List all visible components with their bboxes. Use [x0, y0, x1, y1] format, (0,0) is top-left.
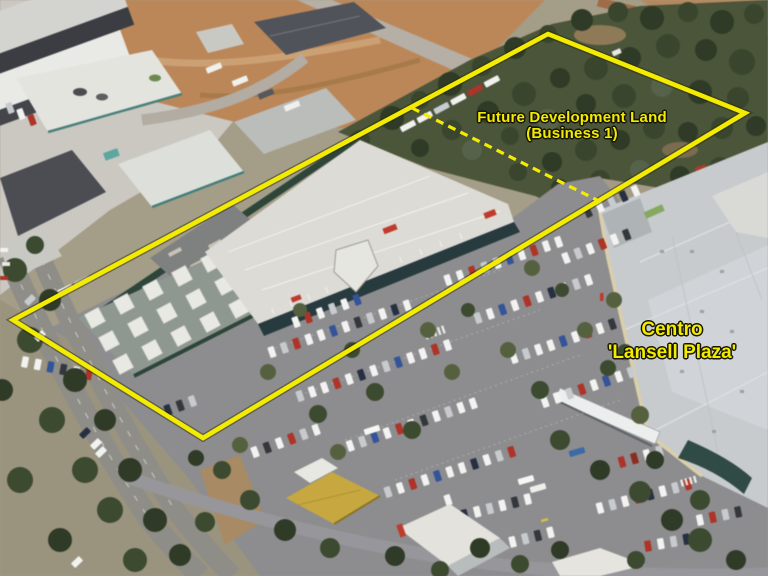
machinery [149, 75, 161, 82]
photo-layer [0, 0, 768, 576]
mall-sign [600, 293, 604, 301]
excavator [96, 94, 108, 101]
excavator [73, 88, 87, 96]
aerial-photo [0, 0, 768, 576]
annotated-aerial-photo: Future Development Land (Business 1) Cen… [0, 0, 768, 576]
